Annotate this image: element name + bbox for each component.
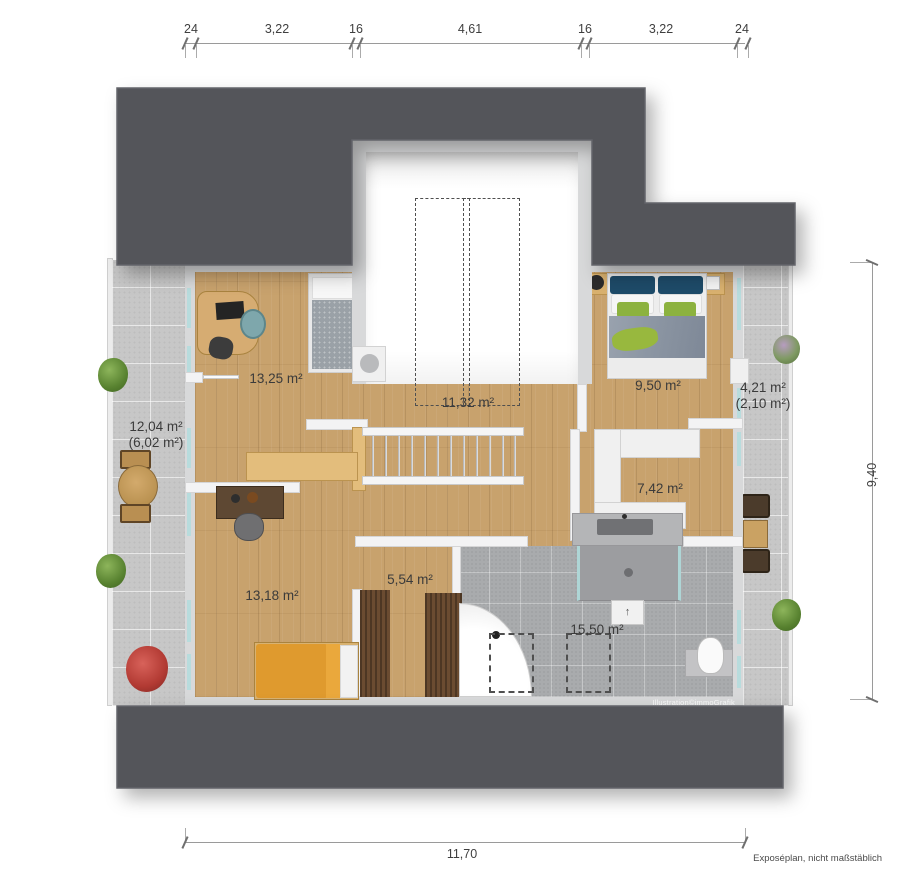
baluster [489, 436, 491, 476]
bed-blanket [312, 300, 354, 369]
railing-rail [362, 476, 524, 485]
balcony-chair [741, 549, 770, 573]
dim-line [185, 842, 745, 843]
room-label-bathroom: 15,50 m² [557, 622, 637, 638]
dim-label-322-right: 3,22 [639, 22, 683, 36]
window [737, 656, 741, 688]
terrace-area-secondary: (6,02 m²) [117, 435, 195, 451]
roof-slope-dashed-outline [489, 633, 534, 693]
bed-pillow-navy [658, 276, 703, 294]
room-label-terrace: 12,04 m² (6,02 m²) [117, 419, 195, 451]
dim-label-24-right: 24 [720, 22, 764, 36]
room-label-dressing: 7,42 m² [620, 481, 700, 497]
terrace-round-table [118, 465, 158, 508]
dim-extension [748, 44, 749, 58]
dim-extension [589, 44, 590, 58]
wall-bath-north-right [683, 536, 743, 547]
baluster [437, 436, 439, 476]
balcony-chair [741, 494, 770, 518]
room-label-void: 11,32 m² [418, 395, 518, 411]
baluster [476, 436, 478, 476]
balcony-right-floor [743, 262, 788, 706]
room-label-closet: 5,54 m² [370, 572, 450, 588]
baluster [514, 436, 516, 476]
vanity-basin [597, 519, 653, 535]
dim-label-16-right: 16 [563, 22, 607, 36]
dim-label-16-left: 16 [334, 22, 378, 36]
faucet-icon [622, 514, 627, 519]
dim-extension [360, 44, 361, 58]
dim-line [185, 43, 745, 44]
window [187, 346, 191, 372]
window [187, 490, 191, 536]
balcony-area-secondary: (2,10 m²) [726, 396, 800, 412]
wall-bedroom-tr-west [577, 384, 587, 432]
bed-pillow [312, 277, 354, 299]
dim-tick [741, 836, 748, 849]
terrace-area-primary: 12,04 m² [117, 419, 195, 435]
toilet [697, 637, 724, 674]
window [187, 288, 191, 328]
dim-extension [185, 44, 186, 58]
dim-label-461: 4,61 [448, 22, 492, 36]
baluster [411, 436, 413, 476]
closet-wardrobe [425, 593, 462, 697]
balcony-area-primary: 4,21 m² [726, 380, 800, 396]
window [187, 600, 191, 642]
bl-bed-mattress [340, 645, 358, 698]
watermark: Illustration©immoGrafik [640, 698, 735, 707]
bl-bed-orange [256, 644, 328, 698]
stair-dashed-outline [463, 198, 520, 406]
mug-icon [231, 494, 240, 503]
closet-wardrobe [360, 590, 390, 697]
wall-office-south-stub [185, 372, 203, 383]
dim-extension [196, 44, 197, 58]
terrace-chair [120, 504, 151, 523]
window [737, 278, 741, 330]
dim-extension [352, 44, 353, 58]
dim-extension [581, 44, 582, 58]
door-leaf [203, 375, 239, 379]
stair-dashed-outline [415, 198, 470, 406]
window [737, 610, 741, 644]
baluster [450, 436, 452, 476]
window [187, 654, 191, 690]
shower-drain-icon [624, 568, 633, 577]
baluster [385, 436, 387, 476]
window [737, 432, 741, 466]
railing-rail [362, 427, 524, 436]
baluster [424, 436, 426, 476]
wall-bath-north-left [355, 536, 528, 547]
baluster [463, 436, 465, 476]
baluster [502, 436, 504, 476]
baluster [398, 436, 400, 476]
pot-icon [247, 492, 258, 503]
room-label-balcony: 4,21 m² (2,10 m²) [726, 380, 800, 412]
footer-note: Exposéplan, nicht maßstäblich [710, 853, 882, 864]
plant-icon [773, 335, 800, 364]
roof-slope-dashed-outline [566, 633, 611, 693]
dim-label-24-left: 24 [169, 22, 213, 36]
dim-label-322-left: 3,22 [255, 22, 299, 36]
dim-label-1170: 11,70 [432, 847, 492, 861]
baluster [372, 436, 374, 476]
wall-bedroom-tr-south [688, 418, 743, 429]
floor-plan-canvas: 24 3,22 16 4,61 16 3,22 24 9,40 11,70 [0, 0, 900, 885]
balcony-table [743, 520, 768, 548]
plant-icon [772, 599, 801, 631]
chimney-flue-icon [360, 354, 379, 373]
dim-label-940: 9,40 [865, 449, 879, 501]
bed-foot [609, 358, 705, 376]
bl-bed-fold [326, 644, 340, 698]
bed-pillow-navy [610, 276, 655, 294]
hall-sideboard [246, 452, 358, 481]
office-chair [240, 309, 266, 339]
room-label-bedroom-tr: 9,50 m² [618, 378, 698, 394]
balcony-railing [788, 262, 793, 706]
dim-extension [737, 44, 738, 58]
room-label-bedroom-bl: 13,18 m² [232, 588, 312, 604]
room-label-office: 13,25 m² [236, 371, 316, 387]
bl-chair [234, 513, 264, 541]
